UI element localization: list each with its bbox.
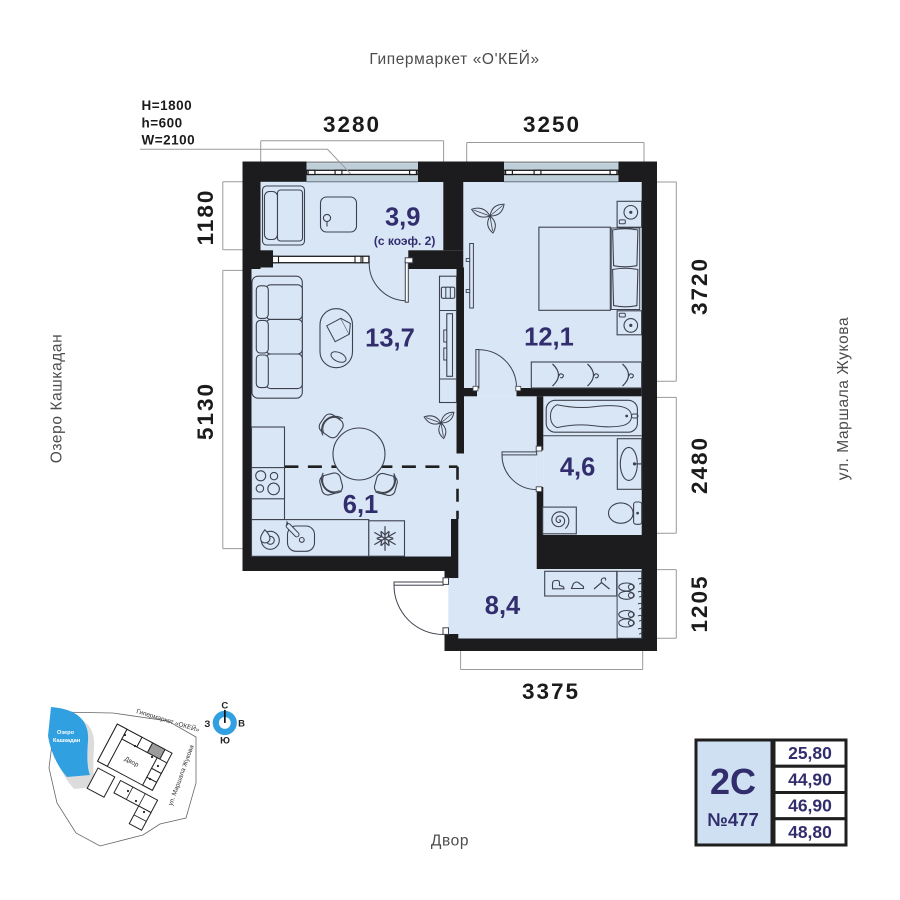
svg-text:46,90: 46,90 <box>788 796 832 816</box>
svg-text:3280: 3280 <box>323 112 381 137</box>
svg-text:В: В <box>238 719 245 730</box>
svg-text:(с коэф. 2): (с коэф. 2) <box>374 234 436 248</box>
svg-text:25,80: 25,80 <box>788 743 832 763</box>
svg-text:С: С <box>221 700 228 711</box>
svg-text:Двор: Двор <box>431 833 469 850</box>
svg-text:4,6: 4,6 <box>560 454 595 482</box>
svg-text:8,4: 8,4 <box>485 592 521 620</box>
svg-text:Гипермаркет «О'КЕЙ»: Гипермаркет «О'КЕЙ» <box>369 50 539 68</box>
svg-text:44,90: 44,90 <box>788 769 832 789</box>
svg-text:W=2100: W=2100 <box>142 133 196 148</box>
svg-text:5130: 5130 <box>193 382 218 440</box>
svg-text:3720: 3720 <box>687 257 712 315</box>
svg-text:48,80: 48,80 <box>788 822 832 842</box>
svg-text:Кашкадан: Кашкадан <box>53 738 80 744</box>
svg-text:№477: №477 <box>707 809 759 830</box>
svg-text:h=600: h=600 <box>142 115 183 130</box>
svg-text:2480: 2480 <box>687 436 712 494</box>
svg-text:2С: 2С <box>710 761 756 802</box>
svg-text:13,7: 13,7 <box>365 325 415 353</box>
svg-text:3375: 3375 <box>522 679 580 704</box>
svg-text:H=1800: H=1800 <box>142 98 193 113</box>
svg-text:З: З <box>204 719 210 730</box>
svg-text:3,9: 3,9 <box>385 204 420 232</box>
svg-text:12,1: 12,1 <box>524 324 574 352</box>
svg-text:Озеро Кашкадан: Озеро Кашкадан <box>49 334 66 464</box>
svg-text:3250: 3250 <box>523 112 581 137</box>
svg-text:ул. Маршала Жукова: ул. Маршала Жукова <box>835 317 852 480</box>
svg-text:6,1: 6,1 <box>343 491 378 519</box>
svg-text:1180: 1180 <box>193 189 218 246</box>
svg-text:1205: 1205 <box>687 574 712 632</box>
svg-text:Озеро: Озеро <box>57 730 75 736</box>
svg-text:Ю: Ю <box>220 735 230 746</box>
